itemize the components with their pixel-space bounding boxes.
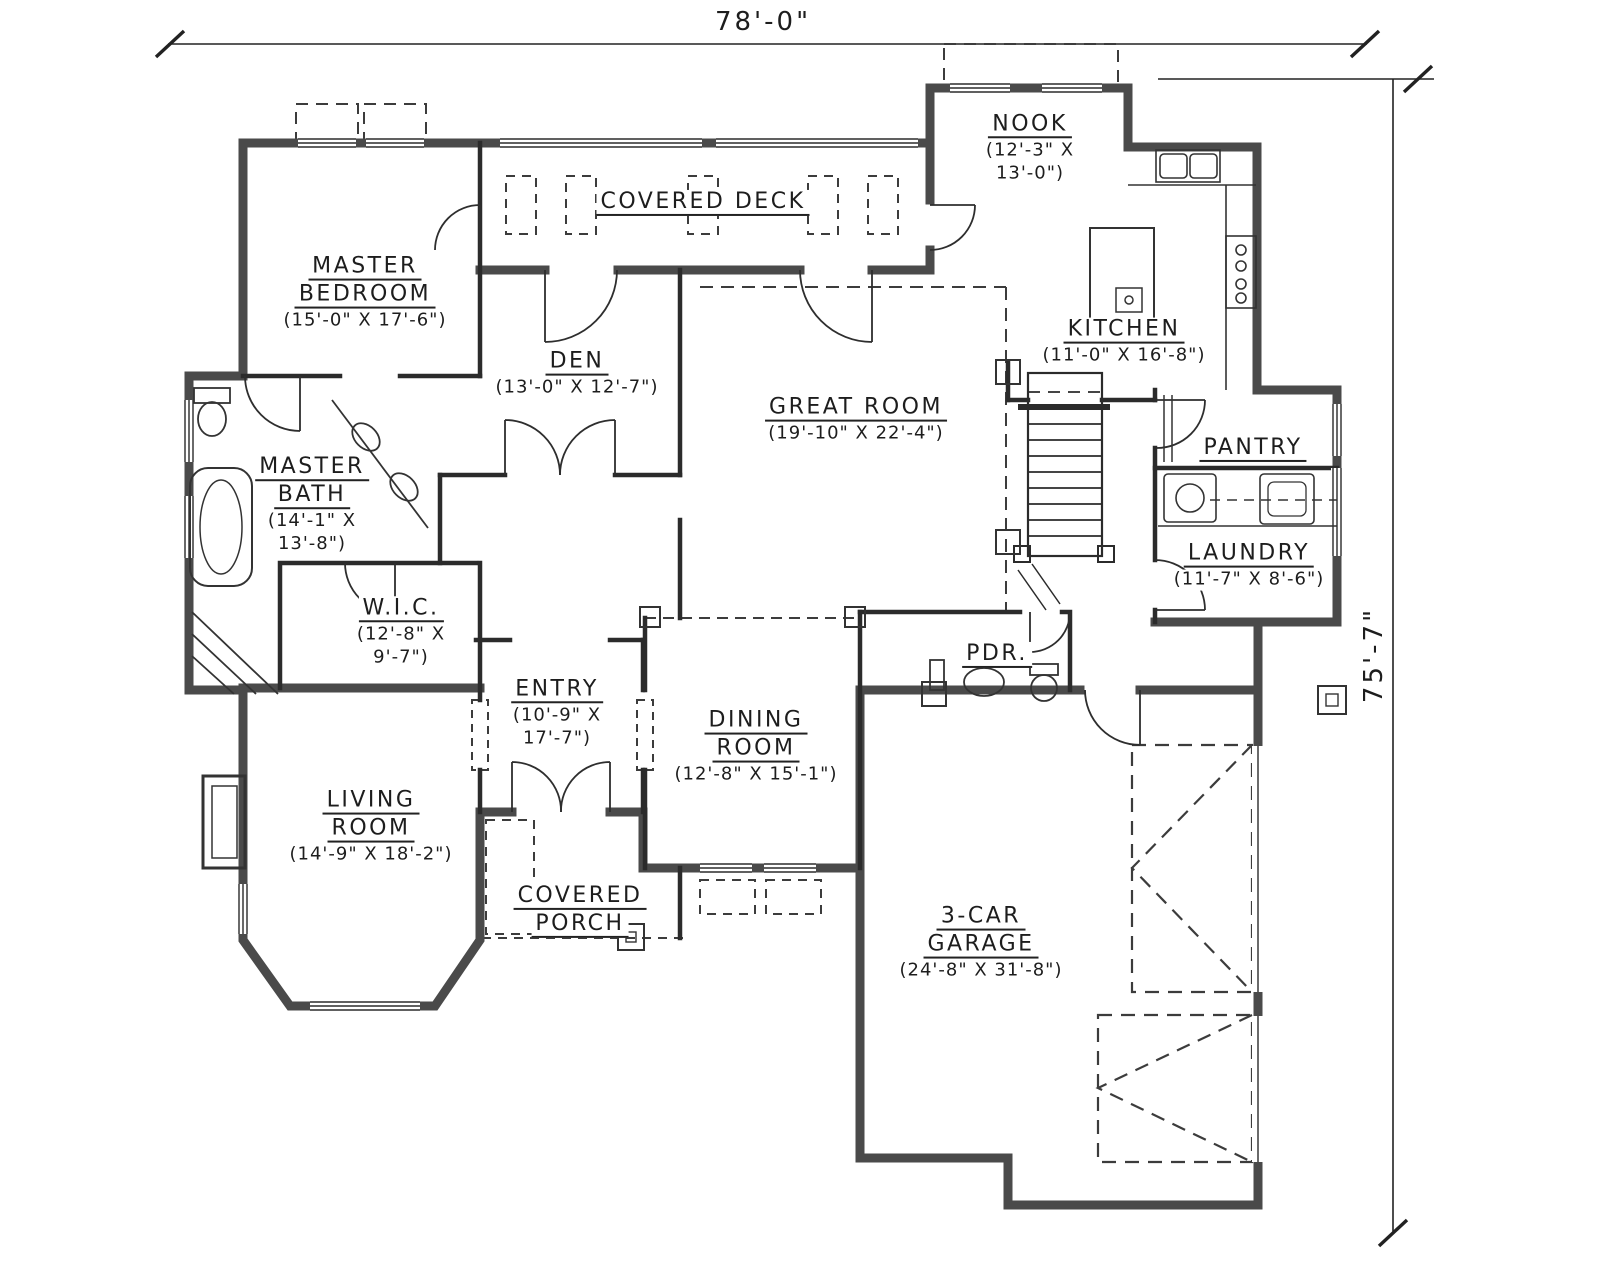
room-size-line: (11'-0" X 16'-8")	[1043, 346, 1206, 367]
overall-width-dimension: 78'-0"	[709, 7, 817, 37]
room-label-covered-porch: COVERED PORCH	[514, 884, 647, 938]
overall-height-dimension: 75'-7"	[1359, 601, 1389, 709]
room-label-kitchen: KITCHEN (11'-0" X 16'-8")	[1043, 318, 1206, 367]
room-label-den: DEN (13'-0" X 12'-7")	[496, 350, 659, 399]
floor-plan-page: { "drawing": { "overall_width_dim": "78'…	[0, 0, 1600, 1280]
pantry-shelves	[1164, 395, 1172, 462]
kitchen-sink	[1128, 150, 1256, 185]
room-size-line: (19'-10" X 22'-4")	[768, 424, 943, 445]
room-size-line: (10'-9" X	[513, 705, 601, 726]
bathtub	[190, 468, 252, 586]
room-name-line: MASTER	[255, 455, 369, 481]
powder-room-toilet	[1030, 664, 1058, 701]
room-name-line: NOOK	[988, 112, 1072, 138]
room-name-line: PANTRY	[1199, 436, 1306, 462]
room-size-line: (13'-0" X 12'-7")	[496, 378, 659, 399]
room-label-covered-deck: COVERED DECK	[597, 190, 810, 216]
room-name-line: ENTRY	[511, 677, 603, 703]
room-name-line: LIVING	[323, 789, 420, 815]
room-name-line: COVERED DECK	[597, 190, 810, 216]
room-label-master-bedroom: MASTER BEDROOM (15'-0" X 17'-6")	[284, 255, 447, 332]
staircase	[1014, 373, 1114, 610]
room-size-line: 13'-8")	[278, 534, 346, 555]
room-label-master-bath: MASTER BATH (14'-1" X 13'-8")	[255, 455, 369, 555]
room-size-line: (11'-7" X 8'-6")	[1174, 570, 1325, 591]
room-name-line: ROOM	[328, 817, 415, 843]
toilet-master-bath	[194, 388, 230, 436]
room-label-three-car-garage: 3-CAR GARAGE (24'-8" X 31'-8")	[900, 905, 1063, 982]
room-size-line: 9'-7")	[373, 647, 429, 668]
room-label-nook: NOOK (12'-3" X 13'-0")	[986, 112, 1074, 183]
room-name-line: KITCHEN	[1064, 318, 1185, 344]
room-label-dining-room: DINING ROOM (12'-8" X 15'-1")	[675, 709, 838, 786]
room-label-powder-room: PDR.	[962, 642, 1032, 668]
room-name-line: ROOM	[713, 737, 800, 763]
laundry-counter	[1158, 474, 1337, 526]
room-size-line: 17'-7")	[523, 728, 591, 749]
room-label-laundry: LAUNDRY (11'-7" X 8'-6")	[1174, 542, 1325, 591]
room-name-line: MASTER	[308, 255, 422, 281]
room-name-line: DINING	[705, 709, 808, 735]
kitchen-island	[1090, 228, 1154, 320]
room-name-line: 3-CAR	[937, 905, 1025, 931]
room-label-living-room: LIVING ROOM (14'-9" X 18'-2")	[290, 789, 453, 866]
room-label-entry: ENTRY (10'-9" X 17'-7")	[511, 677, 603, 748]
room-name-line: GREAT ROOM	[765, 396, 947, 422]
room-name-line: BEDROOM	[295, 283, 435, 309]
room-name-line: BATH	[274, 483, 350, 509]
cooktop	[1226, 185, 1256, 390]
room-name-line: COVERED	[514, 884, 647, 910]
room-size-line: (12'-8" X	[357, 624, 445, 645]
room-name-line: LAUNDRY	[1184, 542, 1314, 568]
room-name-line: DEN	[546, 350, 609, 376]
great-room-ceiling-dashed	[700, 287, 1006, 612]
room-name-line: PORCH	[531, 912, 628, 938]
room-size-line: (15'-0" X 17'-6")	[284, 311, 447, 332]
right-dimension-line	[1158, 66, 1434, 1246]
room-size-line: (12'-8" X 15'-1")	[675, 765, 838, 786]
room-size-line: (12'-3" X	[986, 140, 1074, 161]
room-size-line: (14'-9" X 18'-2")	[290, 845, 453, 866]
room-label-pantry: PANTRY	[1199, 436, 1306, 462]
garage-door-bays-dashed	[1098, 745, 1252, 1162]
room-size-line: (24'-8" X 31'-8")	[900, 961, 1063, 982]
room-size-line: 13'-0")	[996, 163, 1064, 184]
room-label-walk-in-closet: W.I.C. (12'-8" X 9'-7")	[357, 596, 445, 667]
room-label-great-room: GREAT ROOM (19'-10" X 22'-4")	[765, 396, 947, 445]
room-size-line: (14'-1" X	[268, 511, 356, 532]
room-name-line: PDR.	[962, 642, 1032, 668]
shower	[192, 612, 278, 694]
room-name-line: W.I.C.	[358, 596, 443, 622]
room-name-line: GARAGE	[923, 933, 1038, 959]
